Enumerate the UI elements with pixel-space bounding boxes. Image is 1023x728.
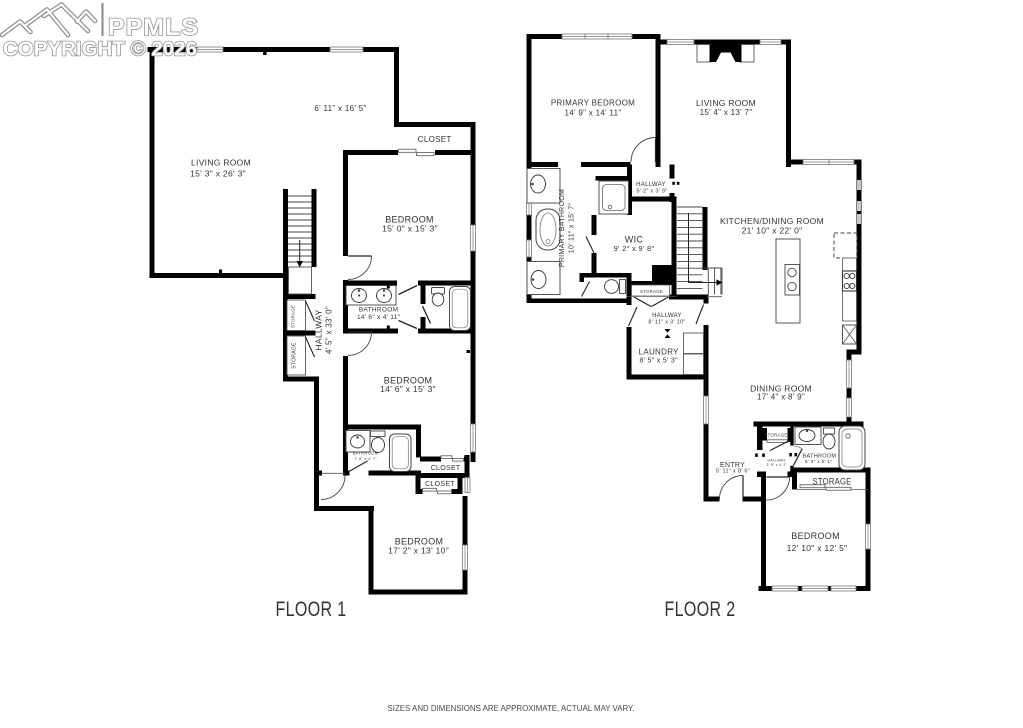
svg-text:CLOSET: CLOSET [431,465,461,472]
svg-text:STORAGE: STORAGE [640,289,663,294]
svg-text:8' 5" x 5' 3": 8' 5" x 5' 3" [639,358,678,365]
svg-text:STORAGE: STORAGE [813,477,852,487]
svg-text:CLOSET: CLOSET [425,481,455,488]
svg-text:9' 2" x 9' 8": 9' 2" x 9' 8" [614,244,655,253]
svg-text:15' 4" x 13' 7": 15' 4" x 13' 7" [700,108,753,117]
svg-text:PRIMARY BEDROOM: PRIMARY BEDROOM [551,99,635,108]
svg-text:HALLWAY: HALLWAY [652,313,682,319]
svg-text:LIVING ROOM: LIVING ROOM [191,158,251,168]
svg-text:BATHROOM: BATHROOM [353,451,379,456]
svg-text:WIC: WIC [625,235,644,245]
svg-text:BATHROOM: BATHROOM [359,307,398,314]
svg-text:COPYRIGHT © 2026: COPYRIGHT © 2026 [3,38,197,61]
svg-text:17' 4" x 8' 9": 17' 4" x 8' 9" [757,393,805,402]
svg-text:STORAGE: STORAGE [764,432,787,437]
svg-text:10' 11" x 15' 7": 10' 11" x 15' 7" [569,203,576,254]
svg-text:BATHROOM: BATHROOM [803,453,837,459]
svg-text:17' 2" x 13' 10": 17' 2" x 13' 10" [388,546,449,556]
svg-text:LAUNDRY: LAUNDRY [639,348,680,357]
svg-text:CLOSET: CLOSET [418,135,452,144]
svg-text:3' 9" x 4' 2": 3' 9" x 4' 2" [766,463,787,467]
svg-text:21' 10" x 22' 0": 21' 10" x 22' 0" [742,226,803,236]
svg-text:STORAGE: STORAGE [292,342,298,369]
svg-text:4' 5" x 33' 0": 4' 5" x 33' 0" [325,306,334,354]
svg-text:STORAGE: STORAGE [291,305,296,328]
svg-text:15' 3" x 26' 3": 15' 3" x 26' 3" [190,169,246,179]
svg-text:7' 8" x 4' 7": 7' 8" x 4' 7" [354,457,377,461]
svg-text:15' 0" x 15' 3": 15' 0" x 15' 3" [382,224,438,234]
svg-text:BEDROOM: BEDROOM [791,531,840,541]
svg-text:PRIMARY BATHROOM: PRIMARY BATHROOM [559,189,566,267]
svg-text:8' 11" x 3' 10": 8' 11" x 3' 10" [648,319,685,325]
svg-text:HALLWAY: HALLWAY [767,458,786,462]
svg-text:5' 2" x 3' 9": 5' 2" x 3' 9" [636,189,667,195]
svg-text:KITCHEN/DINING ROOM: KITCHEN/DINING ROOM [720,216,824,226]
svg-text:14' 6" x 15' 3": 14' 6" x 15' 3" [380,384,436,394]
svg-text:14' 9" x 14' 11": 14' 9" x 14' 11" [565,109,622,118]
svg-text:HALLWAY: HALLWAY [314,309,324,350]
svg-text:12' 10" x 12' 5": 12' 10" x 12' 5" [787,543,848,553]
svg-text:HALLWAY: HALLWAY [636,182,666,188]
svg-text:5' 11" x 8' 6": 5' 11" x 8' 6" [716,469,750,475]
svg-text:14' 6" x 4' 11": 14' 6" x 4' 11" [357,314,401,321]
svg-text:LIVING ROOM: LIVING ROOM [696,98,756,108]
svg-text:FLOOR 1: FLOOR 1 [276,597,347,621]
svg-text:SIZES AND DIMENSIONS ARE APPRO: SIZES AND DIMENSIONS ARE APPROXIMATE, AC… [388,704,635,713]
svg-text:8' 3" x 5' 1": 8' 3" x 5' 1" [805,459,833,465]
svg-text:FLOOR 2: FLOOR 2 [665,597,736,621]
svg-text:6' 11" x 16' 5": 6' 11" x 16' 5" [314,104,366,113]
